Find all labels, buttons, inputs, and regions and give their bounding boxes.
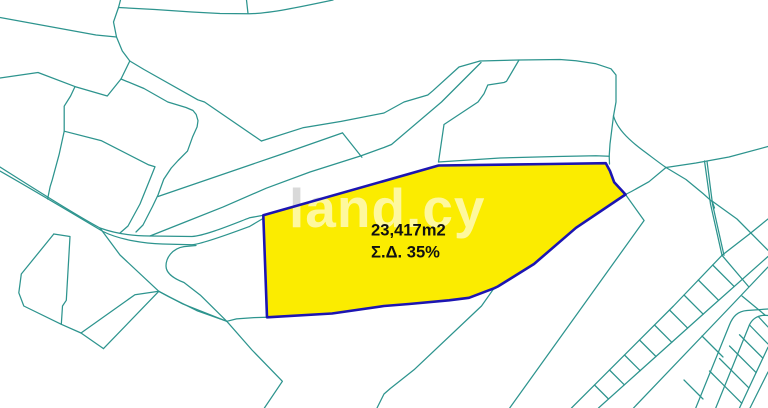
svg-text:23,417m2: 23,417m2 (371, 220, 446, 239)
svg-text:Σ.Δ. 35%: Σ.Δ. 35% (371, 242, 440, 261)
